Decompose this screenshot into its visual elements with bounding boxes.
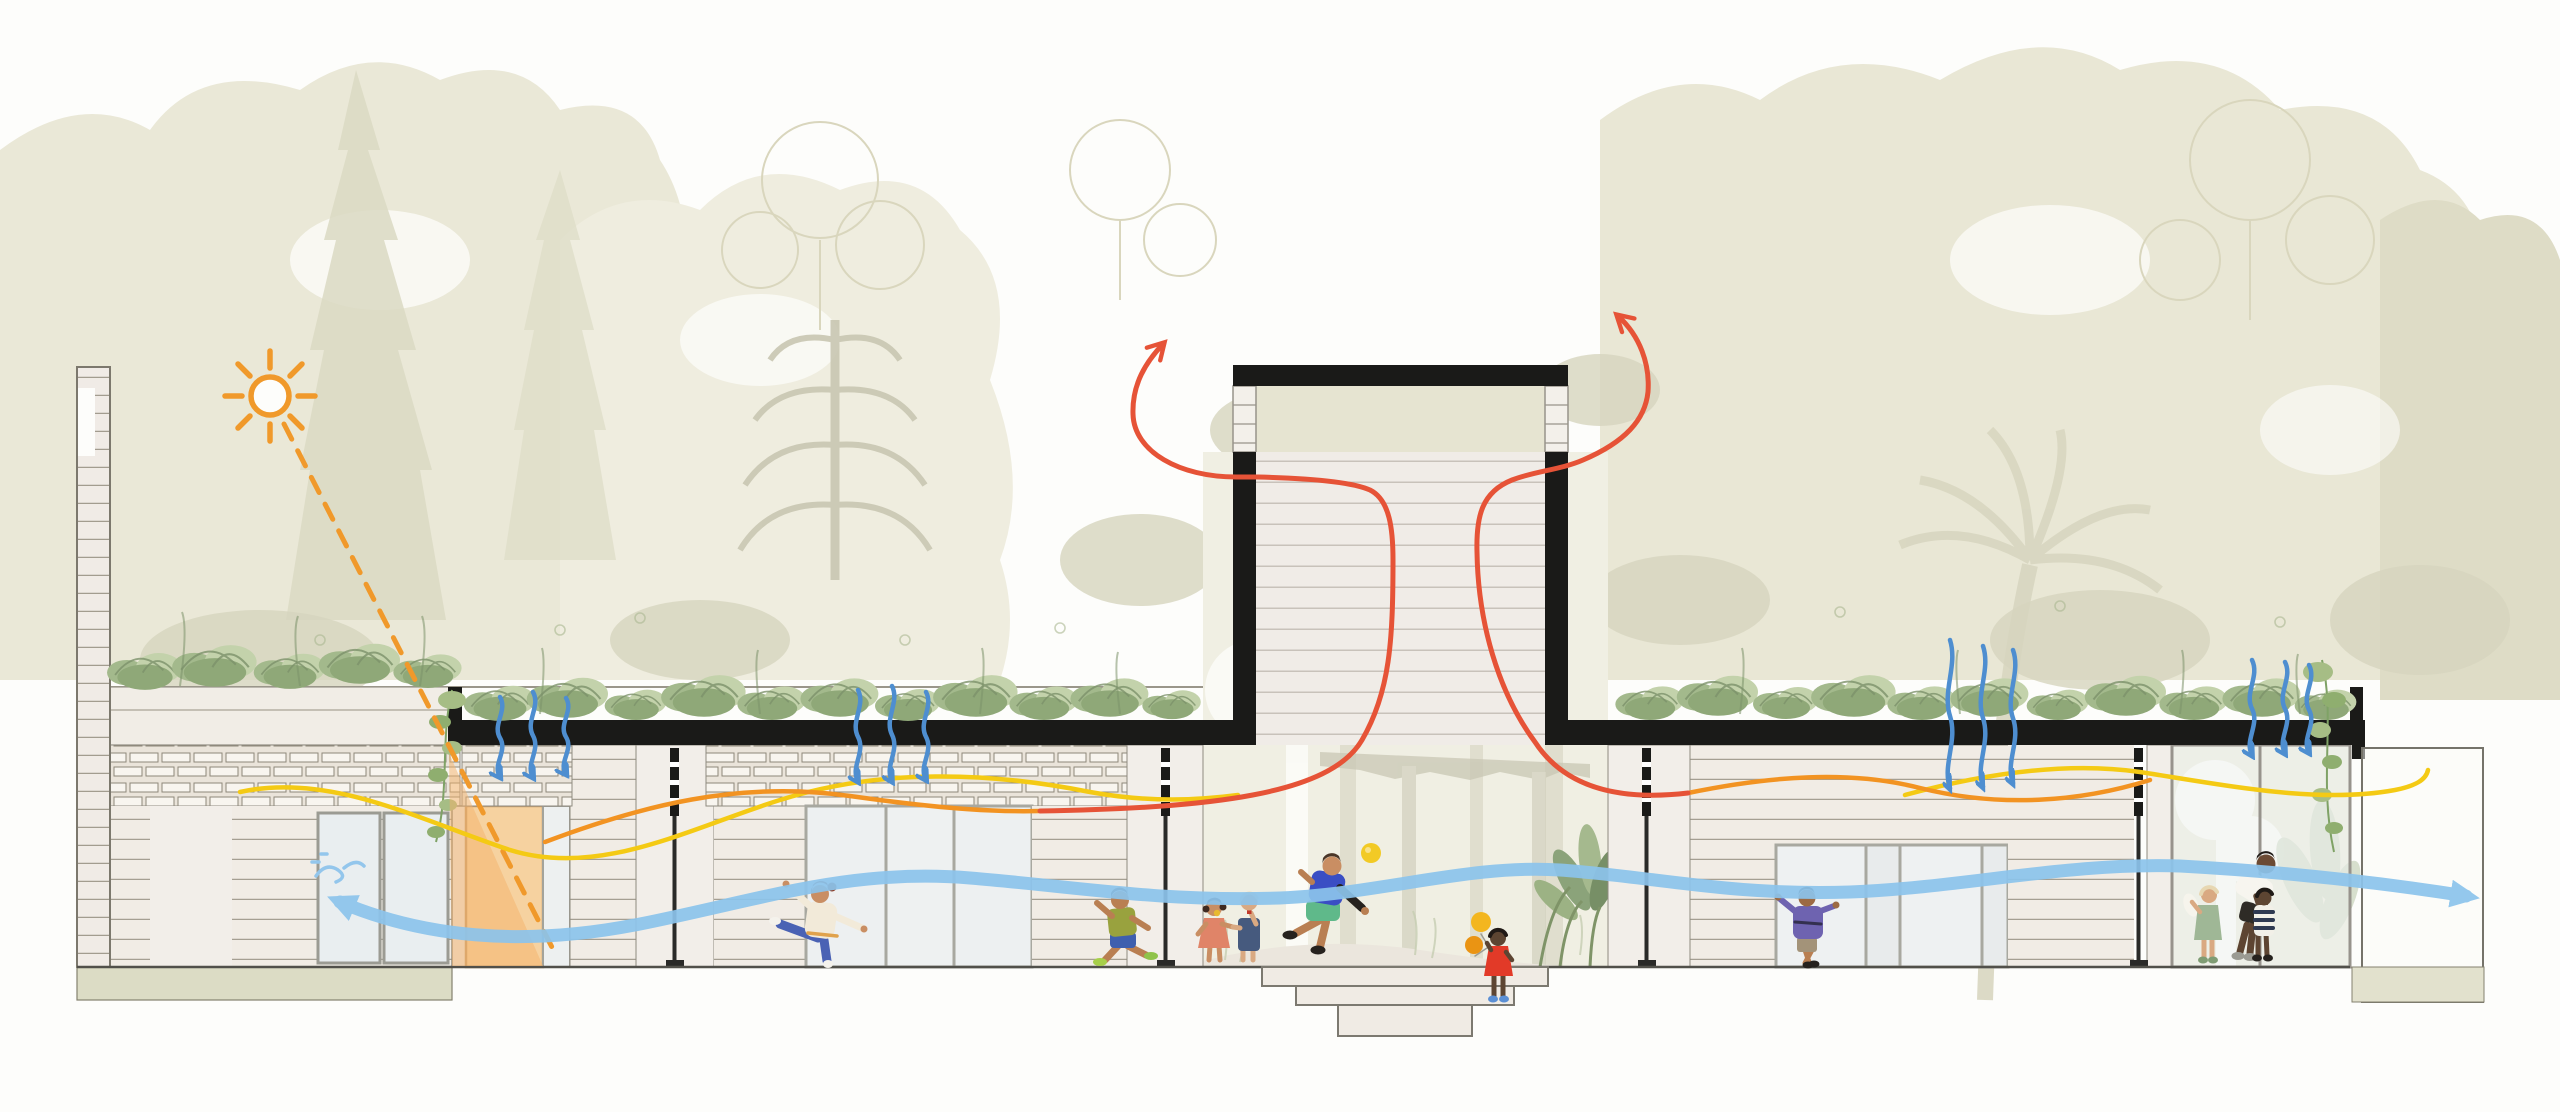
- garden-wall: [2362, 748, 2483, 1002]
- step-3[interactable]: [1338, 1005, 1472, 1036]
- annex-brick-band: [110, 745, 460, 806]
- tower-wall-left: [1233, 452, 1256, 745]
- tower-cap-slab: [1233, 365, 1568, 386]
- foundation-band: [77, 967, 452, 1000]
- section-diagram: [0, 0, 2560, 1112]
- tower-wall-right: [1545, 452, 1568, 745]
- lower-terrace-band: [2352, 967, 2484, 1002]
- chimney-shaft: [1256, 452, 1545, 745]
- balloon: [1471, 912, 1491, 932]
- louvre-opening: [1256, 386, 1545, 452]
- roof-slab: [1545, 720, 2365, 745]
- sun-icon: [225, 351, 315, 441]
- yellow-ball: [1361, 843, 1381, 863]
- ground: [77, 967, 2350, 1036]
- brick-band: [462, 745, 572, 806]
- diagram-svg: [0, 0, 2560, 1112]
- ventilation-tower: [1233, 365, 1568, 745]
- annex-tall-wall: [77, 367, 110, 967]
- plank-wall: [2008, 745, 2134, 967]
- green-roof-left: [464, 675, 1201, 721]
- step-2[interactable]: [1296, 986, 1514, 1005]
- annex-window: [318, 813, 380, 963]
- balloon: [1465, 936, 1483, 954]
- green-roof-right: [1615, 675, 2356, 720]
- terrace-slab: [110, 687, 460, 745]
- annex-wall-notch: [78, 388, 95, 456]
- annex-pier: [150, 806, 232, 967]
